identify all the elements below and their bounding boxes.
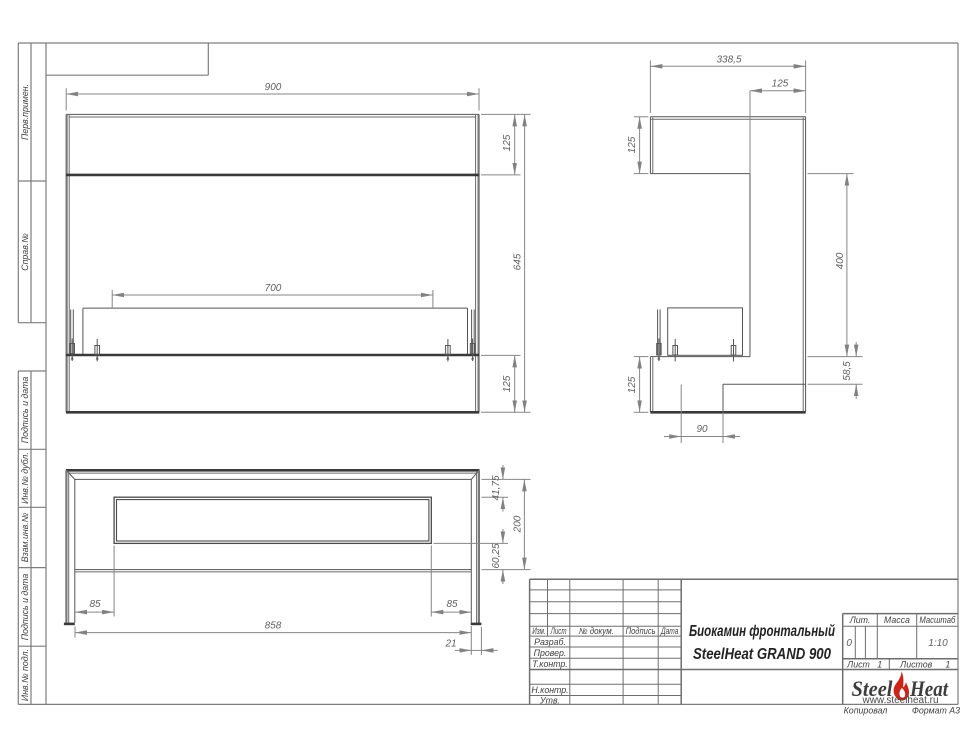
- svg-text:Листов: Листов: [899, 660, 932, 670]
- svg-text:www.steelheat.ru: www.steelheat.ru: [861, 695, 938, 706]
- svg-text:Провер.: Провер.: [534, 648, 567, 658]
- svg-text:700: 700: [265, 283, 282, 294]
- svg-text:Перв.примен.: Перв.примен.: [20, 84, 30, 140]
- svg-text:№ докум.: № докум.: [579, 626, 614, 636]
- svg-text:58,5: 58,5: [842, 361, 853, 381]
- svg-text:Инв.№ дубл.: Инв.№ дубл.: [20, 452, 30, 504]
- svg-text:Т.контр.: Т.контр.: [532, 659, 568, 669]
- svg-text:338,5: 338,5: [716, 54, 741, 65]
- svg-text:1: 1: [877, 660, 882, 670]
- svg-text:Разраб.: Разраб.: [534, 637, 566, 647]
- svg-text:60,25: 60,25: [491, 543, 502, 568]
- svg-text:Масса: Масса: [884, 615, 910, 625]
- svg-text:Копировал: Копировал: [844, 706, 888, 716]
- svg-text:Биокамин фронтальный: Биокамин фронтальный: [689, 623, 835, 640]
- svg-text:Лист: Лист: [846, 660, 870, 670]
- svg-text:645: 645: [512, 253, 523, 270]
- svg-text:125: 125: [627, 136, 638, 153]
- svg-text:1:10: 1:10: [928, 638, 948, 649]
- svg-text:Дата: Дата: [660, 626, 678, 636]
- svg-text:Подпись и дата: Подпись и дата: [20, 574, 30, 641]
- svg-text:41,75: 41,75: [491, 475, 502, 500]
- svg-text:Инв.№ подл.: Инв.№ подл.: [20, 649, 30, 701]
- svg-text:Утв.: Утв.: [539, 695, 560, 705]
- svg-text:900: 900: [265, 82, 282, 93]
- svg-text:90: 90: [696, 424, 708, 435]
- svg-text:Изм.: Изм.: [532, 626, 546, 636]
- svg-text:Лит.: Лит.: [849, 615, 871, 625]
- svg-text:Лист: Лист: [550, 626, 567, 636]
- svg-text:200: 200: [513, 515, 524, 533]
- svg-text:125: 125: [772, 79, 789, 90]
- svg-text:125: 125: [627, 376, 638, 393]
- svg-text:Взам.инв.№: Взам.инв.№: [20, 513, 30, 563]
- svg-text:858: 858: [265, 621, 282, 632]
- svg-text:SteelHeat GRAND 900: SteelHeat GRAND 900: [693, 646, 831, 663]
- svg-text:400: 400: [835, 252, 846, 269]
- svg-text:85: 85: [446, 599, 458, 610]
- svg-text:1: 1: [945, 660, 950, 670]
- svg-text:Подпись: Подпись: [626, 626, 656, 636]
- svg-text:Н.контр.: Н.контр.: [531, 685, 568, 695]
- svg-text:21: 21: [444, 639, 456, 650]
- svg-text:0: 0: [846, 638, 852, 649]
- svg-text:Подпись и дата: Подпись и дата: [20, 377, 30, 444]
- svg-text:125: 125: [502, 134, 513, 151]
- svg-text:Справ.№: Справ.№: [20, 233, 30, 271]
- svg-text:85: 85: [89, 599, 101, 610]
- svg-text:Формат А3: Формат А3: [912, 706, 960, 716]
- svg-text:Масштаб: Масштаб: [919, 615, 956, 625]
- svg-text:125: 125: [502, 375, 513, 392]
